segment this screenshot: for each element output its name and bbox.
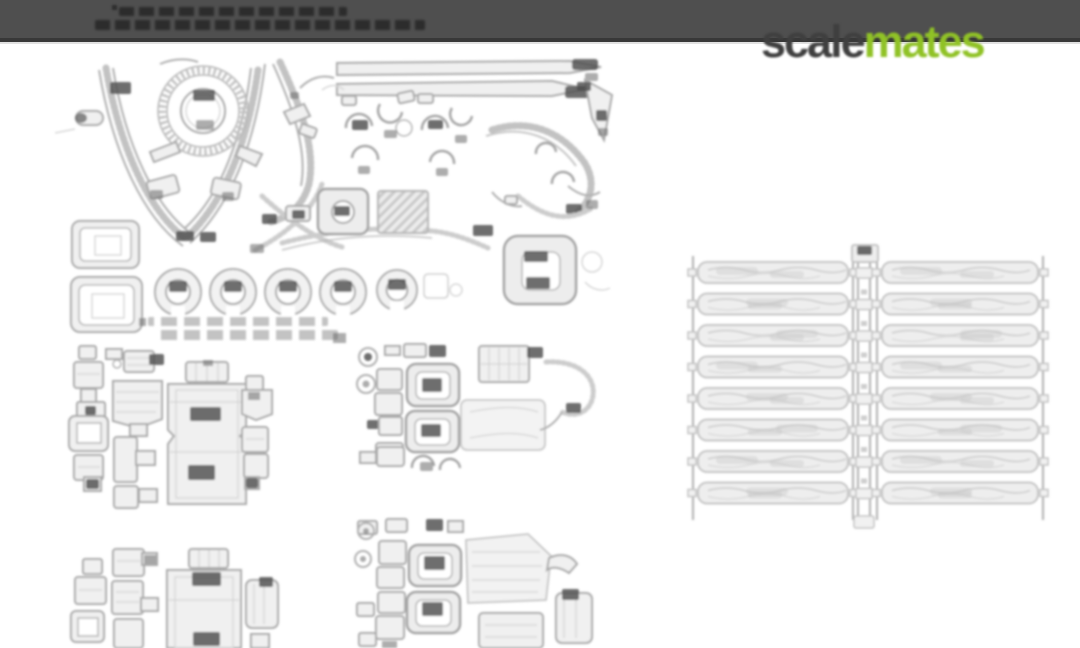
cluster-mid-left	[69, 346, 272, 508]
fret-top-left	[55, 59, 612, 343]
cluster-mid-center	[357, 344, 593, 471]
banner-footnote-mark	[112, 5, 117, 10]
louver-grille-right	[688, 245, 1048, 528]
banner-text-line-2	[95, 20, 425, 30]
logo-text-scale: scale	[761, 16, 864, 67]
scalemates-image-page: .ln{fill:none;stroke:#b0b0b0;stroke-widt…	[0, 0, 1080, 648]
scalemates-watermark: scalemates	[761, 19, 984, 64]
c-ring-row	[155, 269, 417, 324]
instruction-sheet-scan: .ln{fill:none;stroke:#b0b0b0;stroke-widt…	[0, 0, 1080, 648]
logo-text-mates: mates	[864, 16, 984, 67]
cluster-bottom-center	[355, 519, 592, 648]
banner-text-line-1	[119, 7, 347, 16]
cluster-bottom-left	[71, 549, 278, 648]
